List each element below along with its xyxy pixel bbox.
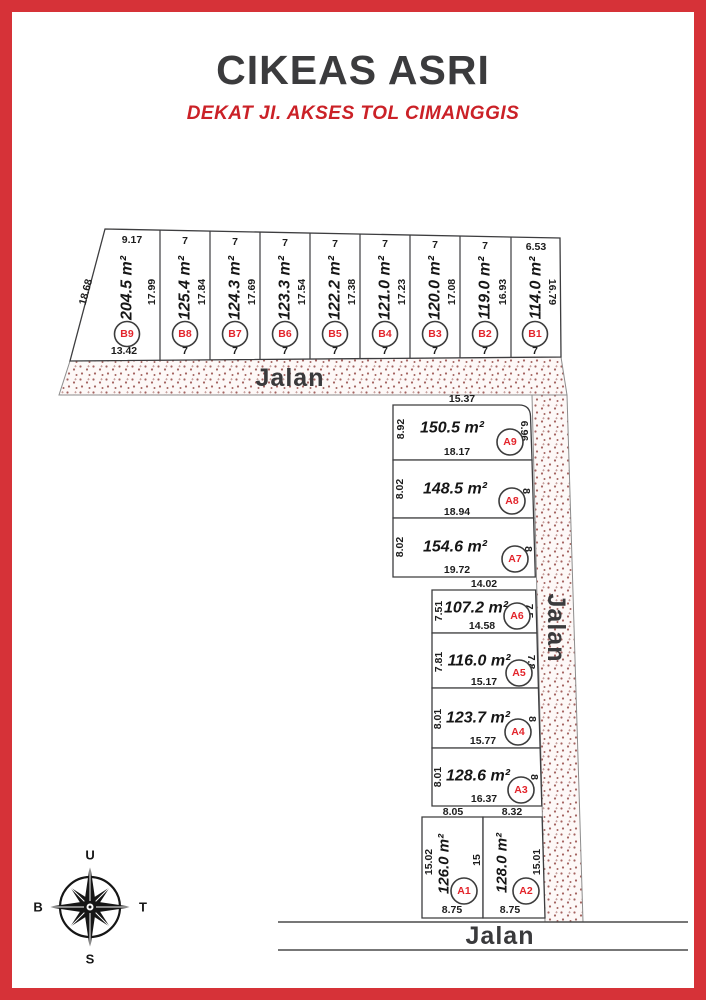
- plot-a2-right-dim: 15.01: [531, 849, 543, 875]
- plot-b5-top-dim: 7: [332, 238, 338, 250]
- plot-b8-id: B8: [178, 328, 192, 340]
- plot-a8-left-dim: 8.02: [394, 479, 406, 500]
- compass-label-north: U: [85, 848, 94, 863]
- plot-b7-bottom-dim: 7: [232, 345, 238, 357]
- plot-b7-right-dim: 17.69: [246, 279, 258, 305]
- plot-b2-area: 119.0 m²: [477, 256, 494, 320]
- plot-b9-bottom-dim: 13.42: [111, 345, 137, 357]
- plot-a3-bottom-dim: 16.37: [471, 793, 497, 805]
- plot-a9-top-dim: 15.37: [449, 393, 475, 405]
- block-a: 15.37 8.92 150.5 m² 6.96 A9 18.17 8.02 1…: [393, 393, 545, 918]
- plot-a5-bottom-dim: 15.17: [471, 676, 497, 688]
- plot-b3-right-dim: 17.08: [446, 279, 458, 305]
- plot-b9-right-dim: 17.99: [146, 279, 158, 305]
- road-bottom: Jalan: [278, 922, 688, 950]
- road-bottom-label: Jalan: [466, 922, 535, 950]
- plot-b2-id: B2: [478, 328, 492, 340]
- plot-a1-area: 126.0 m²: [436, 833, 453, 894]
- plot-a3-left-dim: 8.01: [432, 767, 444, 788]
- plot-a3-id: A3: [514, 784, 528, 796]
- plot-a8-id: A8: [505, 495, 519, 507]
- plot-a1-bottom-dim: 8.75: [442, 904, 463, 916]
- plot-b7-id: B7: [228, 328, 242, 340]
- plot-b8-area: 125.4 m²: [177, 255, 194, 320]
- plot-b3-top-dim: 7: [432, 239, 438, 251]
- plot-b6-area: 123.3 m²: [277, 255, 294, 320]
- plot-b4-id: B4: [378, 328, 392, 340]
- plot-a9-bottom-dim: 18.17: [444, 446, 470, 458]
- plot-b4-top-dim: 7: [382, 238, 388, 250]
- plot-a1-right-dim: 15: [471, 854, 483, 866]
- block-b: 9.17 18.68 204.5 m² 17.99 B9 13.42 7 125…: [70, 229, 561, 361]
- plot-b1-right-dim: 16.79: [546, 279, 558, 305]
- plot-b6-top-dim: 7: [282, 237, 288, 249]
- plot-b5-bottom-dim: 7: [332, 345, 338, 357]
- plot-b6-id: B6: [278, 328, 292, 340]
- plot-a4-id: A4: [511, 726, 525, 738]
- plot-a6-top-dim: 14.02: [471, 578, 497, 590]
- plot-a6-bottom-dim: 14.58: [469, 620, 495, 632]
- plot-b4-bottom-dim: 7: [382, 345, 388, 357]
- plot-b2-top-dim: 7: [482, 240, 488, 252]
- road-top-label: Jalan: [256, 364, 325, 392]
- compass-rose: U S B T: [33, 848, 147, 967]
- plot-b1-bottom-dim: 7: [532, 345, 538, 357]
- plot-b9-area: 204.5 m²: [119, 255, 136, 321]
- plot-a2-bottom-dim: 8.75: [500, 904, 521, 916]
- plot-a6-area: 107.2 m²: [444, 600, 509, 617]
- plot-b5-right-dim: 17.38: [346, 279, 358, 305]
- road-right-label: Jalan: [542, 594, 570, 663]
- plot-a4-right-dim: 8: [526, 716, 538, 722]
- plot-a1-top-dim: 8.05: [443, 806, 464, 818]
- plot-a3-area: 128.6 m²: [446, 768, 511, 785]
- plot-a1-left-dim: 15.02: [423, 849, 435, 875]
- plot-a5-area: 116.0 m²: [448, 653, 512, 670]
- plot-b8-right-dim: 17.84: [196, 279, 208, 305]
- plot-b6-bottom-dim: 7: [282, 345, 288, 357]
- plot-b1-area: 114.0 m²: [528, 256, 545, 320]
- plot-b2-bottom-dim: 7: [482, 345, 488, 357]
- plot-b7-area: 124.3 m²: [227, 255, 244, 320]
- plot-b8-bottom-dim: 7: [182, 345, 188, 357]
- plot-a5-id: A5: [512, 667, 526, 679]
- plot-a1-id: A1: [457, 885, 471, 897]
- plot-b3-id: B3: [428, 328, 442, 340]
- plot-b5-id: B5: [328, 328, 342, 340]
- plot-b4-area: 121.0 m²: [377, 255, 394, 320]
- plot-a3-right-dim: 8: [528, 774, 540, 780]
- plot-a4-bottom-dim: 15.77: [470, 735, 496, 747]
- plot-a4-area: 123.7 m²: [446, 710, 511, 727]
- plot-b1-id: B1: [528, 328, 542, 340]
- plot-b9-id: B9: [120, 328, 134, 340]
- plot-a4-left-dim: 8.01: [432, 709, 444, 730]
- plot-a7-id: A7: [508, 553, 522, 565]
- plot-a8-bottom-dim: 18.94: [444, 506, 470, 518]
- plot-a7-area: 154.6 m²: [423, 539, 488, 556]
- site-plan: Jalan Jalan Jalan 9.17 18.68 204.5 m² 1: [0, 0, 706, 1000]
- plot-a2-id: A2: [519, 885, 533, 897]
- plot-b3-area: 120.0 m²: [427, 255, 444, 320]
- plot-a9-left-dim: 8.92: [395, 419, 407, 440]
- plot-b5-area: 122.2 m²: [327, 255, 344, 320]
- flyer-page: CIKEAS ASRI DEKAT JI. AKSES TOL CIMANGGI…: [0, 0, 706, 1000]
- plot-a6-id: A6: [510, 610, 524, 622]
- plot-b7-top-dim: 7: [232, 236, 238, 248]
- compass-label-south: S: [86, 952, 95, 967]
- plot-a9-id: A9: [503, 436, 517, 448]
- plot-b9-top-dim: 9.17: [122, 234, 143, 246]
- plot-b4-right-dim: 17.23: [396, 279, 408, 305]
- plot-a2-area: 128.0 m²: [494, 832, 511, 893]
- plot-a7-bottom-dim: 19.72: [444, 564, 470, 576]
- compass-label-west: B: [33, 900, 42, 915]
- plot-b2-right-dim: 16.93: [497, 279, 509, 305]
- plot-a7-left-dim: 8.02: [394, 537, 406, 558]
- plot-a5-left-dim: 7.81: [433, 652, 445, 673]
- compass-label-east: T: [139, 900, 147, 915]
- plot-a9-area: 150.5 m²: [420, 420, 485, 437]
- plot-b6-right-dim: 17.54: [296, 279, 308, 305]
- compass-hub-dot: [89, 906, 92, 909]
- plot-a2-top-dim: 8.32: [502, 806, 523, 818]
- plot-b8-top-dim: 7: [182, 235, 188, 247]
- plot-b1-top-dim: 6.53: [526, 241, 547, 253]
- plot-b3-bottom-dim: 7: [432, 345, 438, 357]
- plot-a8-area: 148.5 m²: [423, 481, 488, 498]
